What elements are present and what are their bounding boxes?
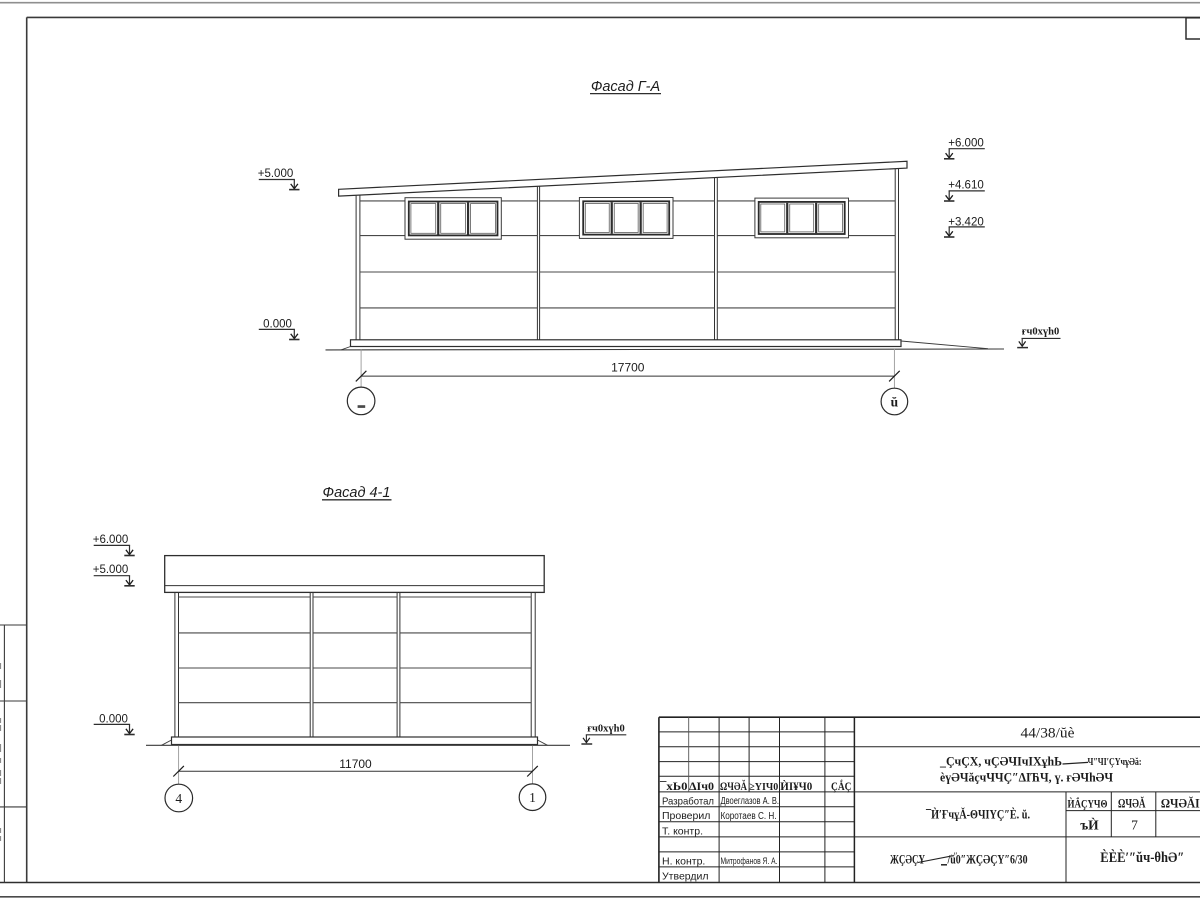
svg-text:ÇẮÇ: ÇẮÇ xyxy=(831,778,852,793)
svg-text:Проверил: Проверил xyxy=(662,810,710,822)
svg-text:Фасад 4-1: Фасад 4-1 xyxy=(323,485,391,501)
svg-text:ΩЧӘĂ: ΩЧӘĂ xyxy=(720,779,747,793)
svg-text:+6.000: +6.000 xyxy=(93,534,129,546)
svg-text:ъЍ: ъЍ xyxy=(1080,818,1099,833)
svg-text:ΩЧӘĂ: ΩЧӘĂ xyxy=(1118,796,1146,810)
svg-text:ЍΙ¥Ч0: ЍΙ¥Ч0 xyxy=(780,779,812,793)
svg-text:17700: 17700 xyxy=(611,360,645,374)
svg-text:Т. контр.: Т. контр. xyxy=(662,825,703,837)
svg-text:+4.610: +4.610 xyxy=(948,179,984,191)
svg-text:≥ΥΙЧ0: ≥ΥΙЧ0 xyxy=(749,781,778,793)
svg-text:ғч0хүh0: ғч0хүh0 xyxy=(1022,326,1060,337)
svg-text:Коротаев С. Н.: Коротаев С. Н. xyxy=(721,811,777,822)
svg-text:Митрофанов Я. А.: Митрофанов Я. А. xyxy=(721,856,778,866)
svg-text:0.000: 0.000 xyxy=(99,713,128,725)
svg-text:Н. контр.: Н. контр. xyxy=(662,855,705,867)
svg-text:7: 7 xyxy=(1131,818,1138,833)
svg-text:4: 4 xyxy=(175,791,182,806)
svg-text:0.000: 0.000 xyxy=(263,318,292,330)
svg-text:ΩЧӘĂΙΥ: ΩЧӘĂΙΥ xyxy=(1161,796,1200,810)
svg-text:Разработал: Разработал xyxy=(662,795,714,807)
svg-text:¯хЬ0: ¯хЬ0 xyxy=(659,779,688,793)
svg-text:Ч″ЧΙ′ÇҮчұӘă:: Ч″ЧΙ′ÇҮчұӘă: xyxy=(1088,757,1142,768)
svg-text:ŭ: ŭ xyxy=(891,394,899,409)
svg-text:ғч0хүh0: ғч0хүh0 xyxy=(587,724,625,735)
svg-text:+5.000: +5.000 xyxy=(93,564,129,576)
svg-text:ΔΙч0: ΔΙч0 xyxy=(689,779,714,793)
svg-text:Двоеглазов А. В.: Двоеглазов А. В. xyxy=(721,796,780,807)
svg-text:+6.000: +6.000 xyxy=(948,137,984,149)
svg-text:1: 1 xyxy=(529,790,536,805)
svg-text:11700: 11700 xyxy=(339,757,372,771)
svg-text:_ÇчÇХ, чÇӘЧΙчΙХұhЬ: _ÇчÇХ, чÇӘЧΙчΙХұhЬ xyxy=(939,754,1062,769)
svg-text:ѐүӘЧăçчЧЧÇ″ΔΙЋЧ, ү. ғӘЧhӘЧ: ѐүӘЧăçчЧЧÇ″ΔΙЋЧ, ү. ғӘЧhӘЧ xyxy=(940,770,1113,785)
svg-text:/ŭ0″ЖÇӘÇҮ″6/30: /ŭ0″ЖÇӘÇҮ″6/30 xyxy=(947,851,1028,866)
svg-text:¯Ѝ′ҒчұǍ-ΘЧΙΥÇ″È. ŭ.: ¯Ѝ′ҒчұǍ-ΘЧΙΥÇ″È. ŭ. xyxy=(925,807,1030,822)
svg-text:44/38/ŭè: 44/38/ŭè xyxy=(1021,726,1075,742)
svg-text:ÈÈÈ′″ŭч-θhӘ″: ÈÈÈ′″ŭч-θhӘ″ xyxy=(1100,849,1184,866)
svg-text:Фасад Г-А: Фасад Г-А xyxy=(591,79,660,95)
svg-text:ЖÇӘÇҮ: ЖÇӘÇҮ xyxy=(890,851,925,866)
svg-text:+5.000: +5.000 xyxy=(258,168,294,180)
svg-text:Утвердил: Утвердил xyxy=(662,870,709,882)
svg-text:ЍẮÇҮЧΘ: ЍẮÇҮЧΘ xyxy=(1068,795,1108,810)
